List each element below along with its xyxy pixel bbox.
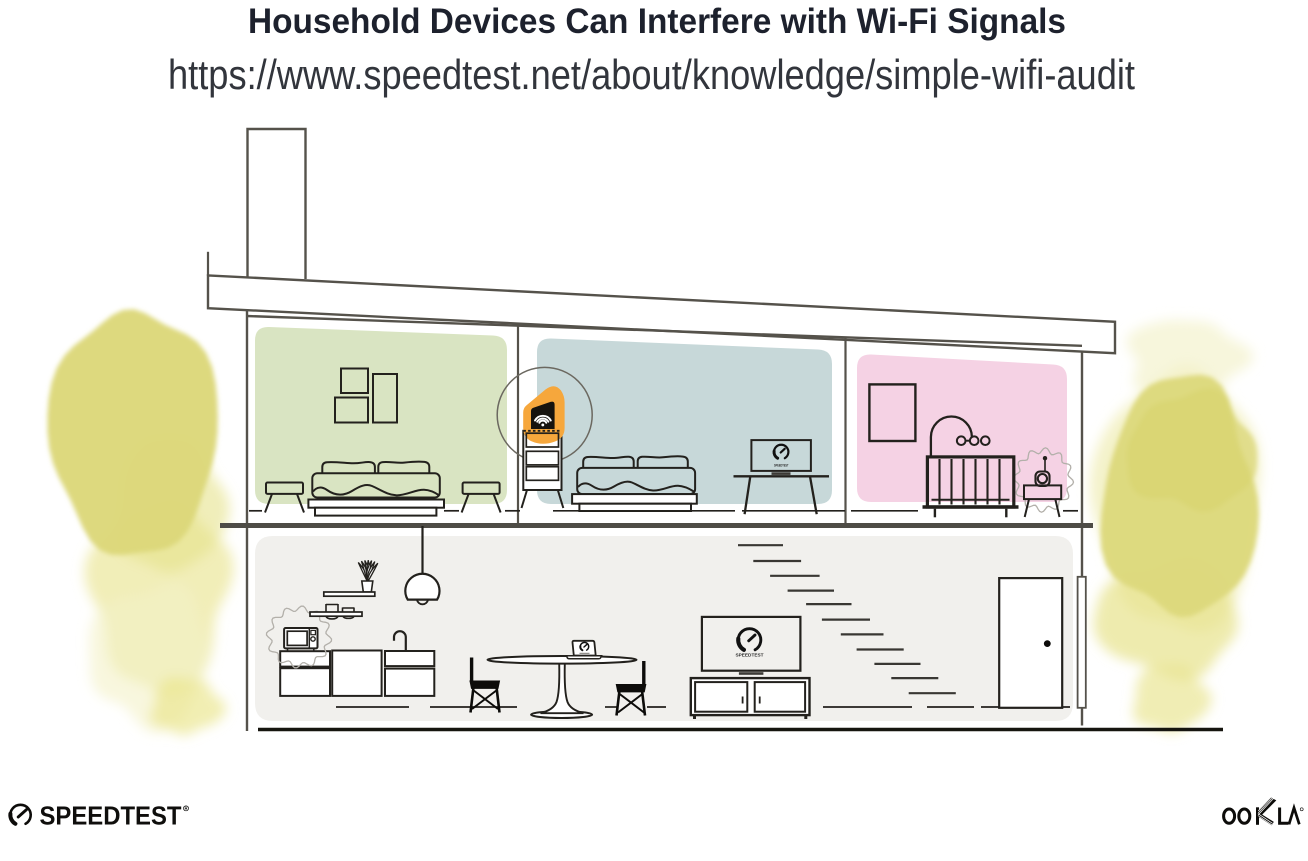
svg-text:Household Devices Can Interfer: Household Devices Can Interfere with Wi-… — [248, 2, 1066, 41]
svg-text:https://www.speedtest.net/abou: https://www.speedtest.net/about/knowledg… — [168, 51, 1135, 98]
svg-text:SPEEDTEST: SPEEDTEST — [774, 463, 789, 467]
svg-text:SPEEDTEST: SPEEDTEST — [736, 652, 764, 657]
svg-text:SPEEDTEST: SPEEDTEST — [40, 803, 182, 831]
